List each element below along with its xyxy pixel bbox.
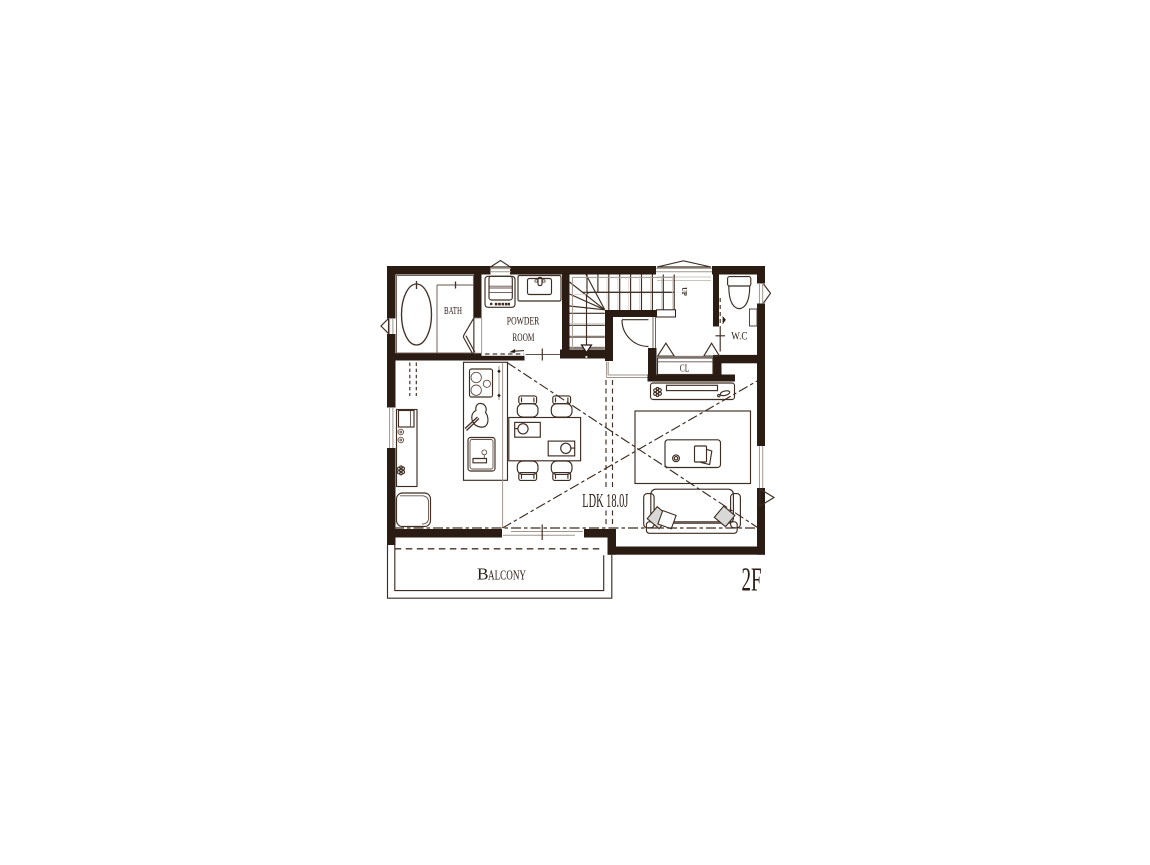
svg-text:CL: CL (680, 363, 690, 375)
svg-text:BATH: BATH (444, 306, 462, 317)
svg-text:W.C: W.C (731, 331, 747, 343)
svg-text:B: B (477, 564, 489, 583)
svg-text:POWDER: POWDER (507, 313, 540, 327)
svg-text:LDK 18.0J: LDK 18.0J (582, 490, 628, 512)
svg-text:ALCONY: ALCONY (488, 567, 526, 582)
svg-text:UP: UP (680, 287, 689, 296)
svg-text:ROOM: ROOM (512, 330, 534, 344)
svg-text:2F: 2F (742, 560, 762, 598)
